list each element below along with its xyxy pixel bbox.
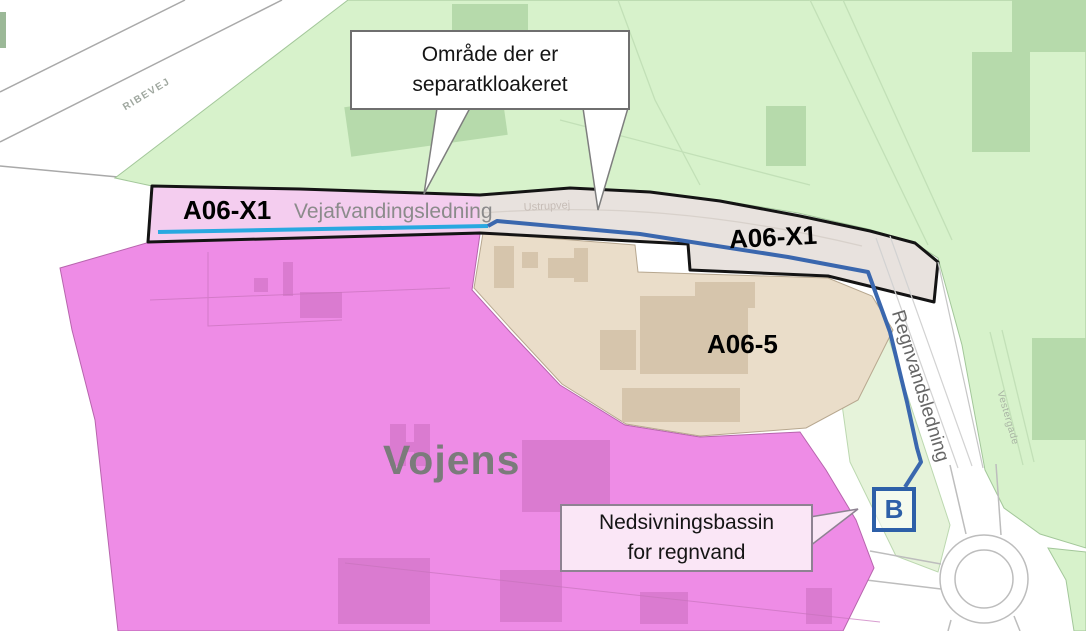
zone-label-a06x1-left: A06-X1 [183, 197, 271, 223]
callout-nedsivningsbassin-line1: Nedsivningsbassin [599, 508, 774, 538]
map: RIBEVEJ A06-X1 Vejafvandingsledning Ustr… [0, 0, 1086, 631]
callout-separatkloakeret-line1: Område der er [422, 40, 559, 70]
pipe-label-vejafvandingsledning: Vejafvandingsledning [294, 201, 493, 222]
callout-nedsivningsbassin: Nedsivningsbassin for regnvand [560, 504, 813, 572]
zone-label-a06-5: A06-5 [707, 331, 778, 357]
callout-separatkloakeret: Område der er separatkloakeret [350, 30, 630, 110]
city-label-vojens: Vojens [383, 440, 520, 481]
callout-nedsivningsbassin-line2: for regnvand [628, 538, 746, 568]
callout-separatkloakeret-line2: separatkloakeret [412, 70, 567, 100]
zone-label-a06x1-right: A06-X1 [728, 222, 817, 253]
basin-marker: B [872, 487, 916, 532]
basin-marker-letter: B [885, 494, 904, 525]
